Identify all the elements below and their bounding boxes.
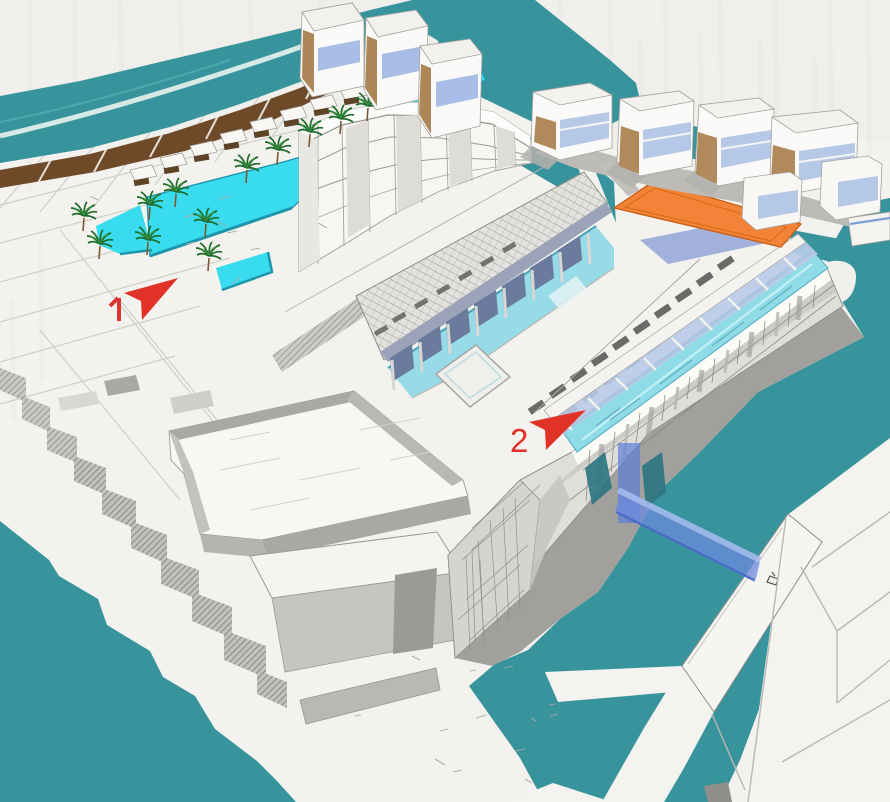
svg-text:2: 2	[510, 422, 528, 459]
